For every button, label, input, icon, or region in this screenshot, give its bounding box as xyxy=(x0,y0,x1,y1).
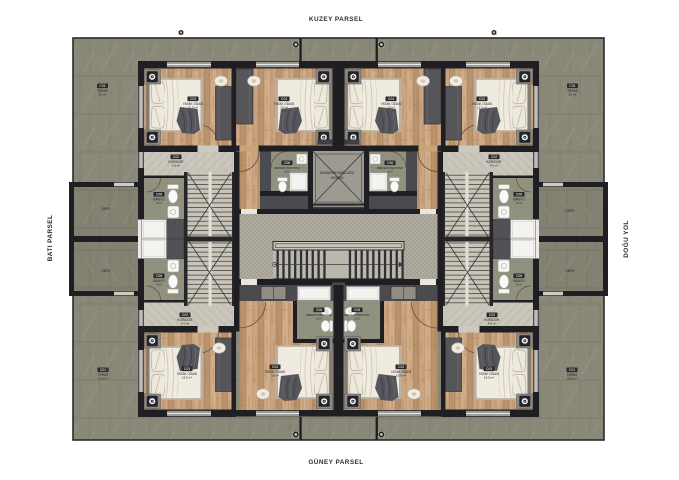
svg-text:16.5 m²: 16.5 m² xyxy=(182,376,192,380)
svg-text:4.5 m²: 4.5 m² xyxy=(172,164,181,168)
svg-text:2 m²: 2 m² xyxy=(354,316,360,320)
svg-text:C03: C03 xyxy=(486,367,492,371)
svg-text:16 m²: 16 m² xyxy=(271,374,279,378)
svg-text:C06: C06 xyxy=(316,308,322,312)
svg-text:KUZEY PARSEL: KUZEY PARSEL xyxy=(309,16,363,23)
svg-text:200X220: 200X220 xyxy=(331,176,344,180)
svg-text:C06: C06 xyxy=(284,161,290,165)
svg-text:11.5 m²: 11.5 m² xyxy=(477,106,487,110)
svg-text:16.5 m²: 16.5 m² xyxy=(396,374,406,378)
svg-text:DEPO: DEPO xyxy=(101,269,111,273)
svg-text:C03: C03 xyxy=(398,365,404,369)
svg-text:DOĞU YOL: DOĞU YOL xyxy=(621,220,630,258)
svg-text:23 m²: 23 m² xyxy=(569,93,577,97)
svg-text:10 m²: 10 m² xyxy=(387,106,395,110)
svg-text:C03: C03 xyxy=(479,97,485,101)
svg-text:ASANSÖR BOŞLUĞU: ASANSÖR BOŞLUĞU xyxy=(320,170,355,175)
svg-text:C01: C01 xyxy=(100,368,106,372)
svg-text:23 m²: 23 m² xyxy=(99,93,107,97)
svg-text:C04: C04 xyxy=(388,97,394,101)
svg-text:C05: C05 xyxy=(516,274,522,278)
svg-text:C05: C05 xyxy=(156,193,162,197)
svg-text:11.5 m²: 11.5 m² xyxy=(188,106,198,110)
svg-text:10 m²: 10 m² xyxy=(280,106,288,110)
svg-text:DEPO: DEPO xyxy=(565,269,575,273)
svg-text:3 m²: 3 m² xyxy=(156,201,162,205)
svg-text:C02: C02 xyxy=(491,155,497,159)
svg-text:C04: C04 xyxy=(281,97,287,101)
svg-text:C01: C01 xyxy=(569,84,575,88)
svg-text:C02: C02 xyxy=(182,313,188,317)
svg-text:4.5 m²: 4.5 m² xyxy=(181,322,190,326)
svg-text:C05: C05 xyxy=(516,193,522,197)
svg-text:C03: C03 xyxy=(184,367,190,371)
svg-text:C01: C01 xyxy=(99,84,105,88)
svg-text:C02: C02 xyxy=(489,313,495,317)
svg-text:C01: C01 xyxy=(569,368,575,372)
svg-text:C03: C03 xyxy=(272,365,278,369)
svg-text:BATI PARSEL: BATI PARSEL xyxy=(47,215,54,262)
svg-text:C05: C05 xyxy=(156,274,162,278)
svg-text:16.5 m²: 16.5 m² xyxy=(484,376,494,380)
svg-text:C02: C02 xyxy=(173,155,179,159)
svg-text:2 m²: 2 m² xyxy=(387,169,393,173)
svg-text:2 m²: 2 m² xyxy=(316,316,322,320)
svg-text:C03: C03 xyxy=(190,97,196,101)
svg-text:DEPO: DEPO xyxy=(101,207,111,211)
svg-text:2 m²: 2 m² xyxy=(284,169,290,173)
svg-text:3 m²: 3 m² xyxy=(516,283,522,287)
svg-text:4.5 m²: 4.5 m² xyxy=(488,322,497,326)
svg-text:3 m²: 3 m² xyxy=(156,283,162,287)
svg-text:GÜNEY PARSEL: GÜNEY PARSEL xyxy=(308,457,363,466)
svg-text:C06: C06 xyxy=(387,161,393,165)
svg-text:4.5 m²: 4.5 m² xyxy=(490,164,499,168)
svg-text:23.5 m²: 23.5 m² xyxy=(98,377,108,381)
svg-text:C06: C06 xyxy=(354,308,360,312)
svg-text:23.5 m²: 23.5 m² xyxy=(567,377,577,381)
svg-text:3 m²: 3 m² xyxy=(516,201,522,205)
svg-text:DEPO: DEPO xyxy=(565,209,575,213)
